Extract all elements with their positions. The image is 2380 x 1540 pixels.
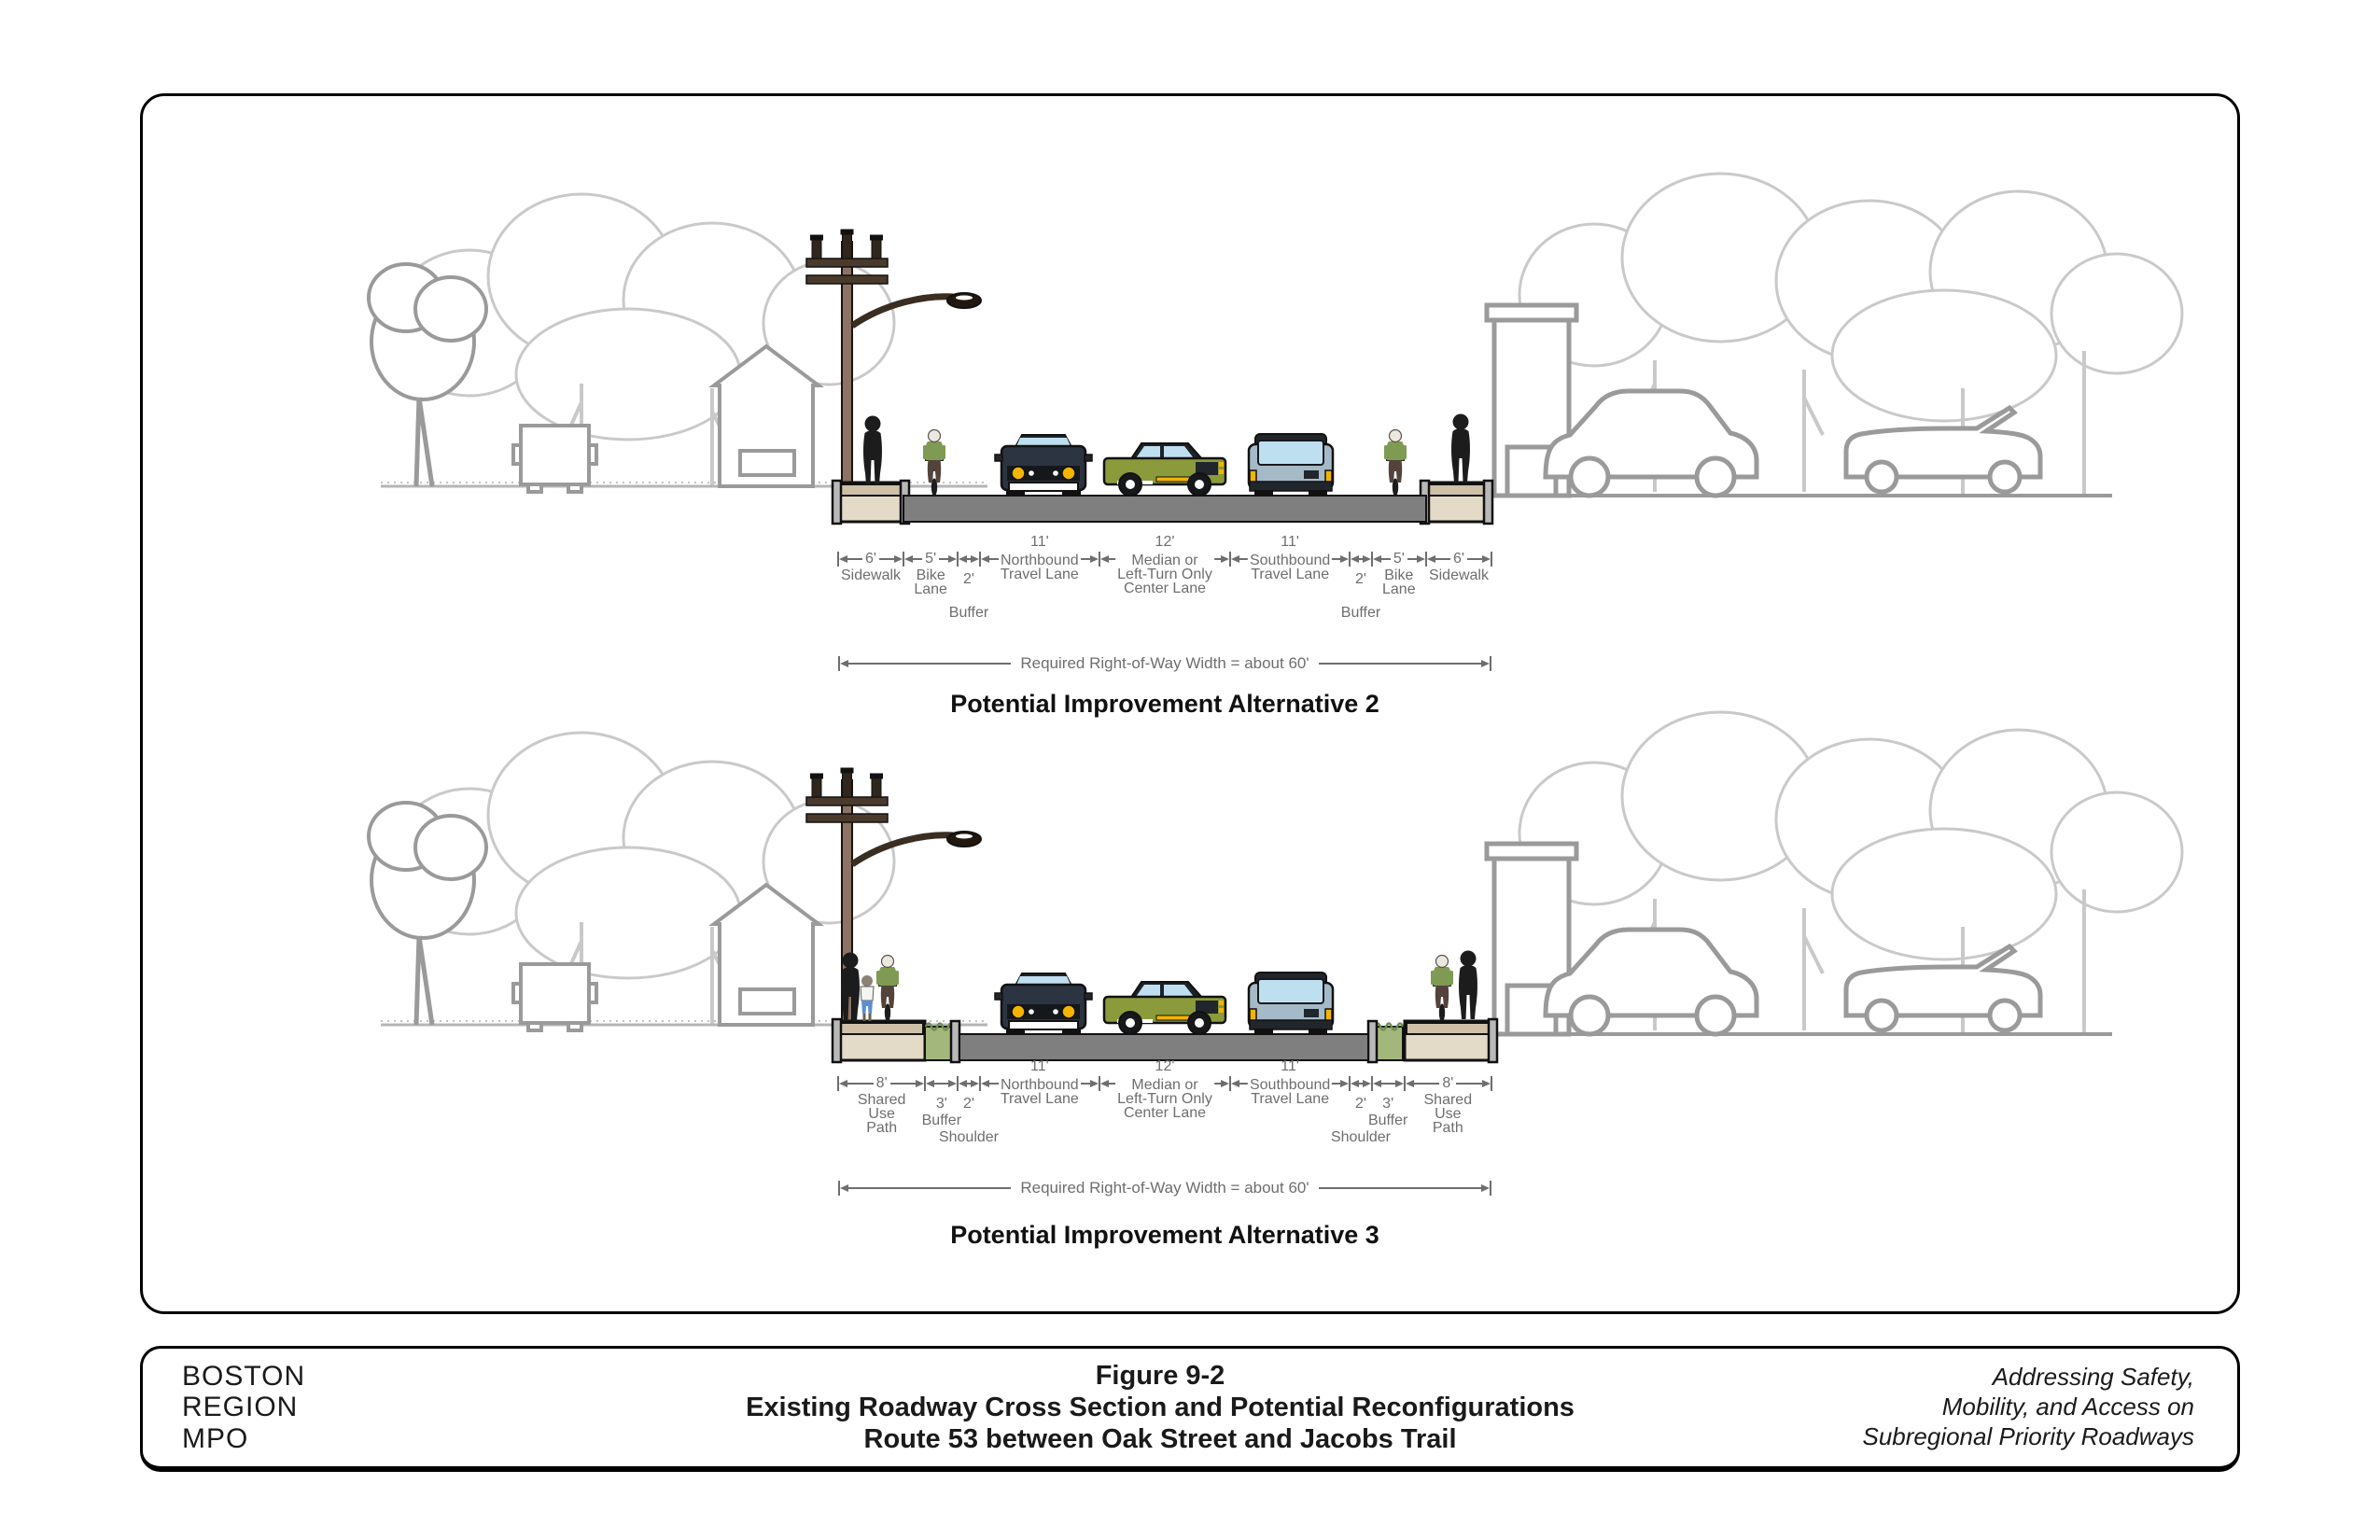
caption-alt3: Potential Improvement Alternative 3	[838, 1221, 1491, 1250]
cyclist-standing-right	[1431, 956, 1453, 1022]
dimension-segment: 11'Northbound Travel Lane	[980, 552, 1099, 656]
figure-number: Figure 9-2	[574, 1360, 1746, 1392]
report-tagline-line: Subregional Priority Roadways	[1746, 1422, 2194, 1452]
cross-section-alt2-illustration	[143, 104, 2237, 542]
agency-name-line: MPO	[182, 1423, 574, 1455]
cyclist-bike-lane-right	[1384, 430, 1407, 497]
pedestrian-silhouette	[1459, 951, 1477, 1020]
grass-buffer-left	[925, 1021, 959, 1062]
dimension-segment: 2'Shoulder	[1350, 1076, 1371, 1181]
dimension-segment: 6'Sidewalk	[838, 552, 903, 656]
cyclist-standing-left	[876, 956, 899, 1022]
report-tagline-line: Mobility, and Access on	[1746, 1393, 2194, 1422]
pedestrian-silhouette	[863, 416, 882, 485]
figure-frame: 6'Sidewalk 5'Bike Lane 2'Buffer 11'North…	[140, 93, 2240, 1314]
agency-name-line: BOSTON	[182, 1361, 574, 1393]
dimension-segment: 3'Buffer	[1372, 1076, 1405, 1181]
agency-name: BOSTON REGION MPO	[143, 1361, 574, 1455]
vehicles	[995, 434, 1333, 496]
right-of-way-dimension-alt2: Required Right-of-Way Width = about 60'	[838, 656, 1491, 671]
grass-buffer-right	[1368, 1021, 1403, 1062]
right-of-way-dimension-alt3: Required Right-of-Way Width = about 60'	[838, 1181, 1491, 1196]
roadway	[959, 1034, 1368, 1060]
dimension-segment: 3'Buffer	[925, 1076, 958, 1181]
dimension-strip-alt2: 6'Sidewalk 5'Bike Lane 2'Buffer 11'North…	[838, 552, 1491, 656]
roadway	[903, 496, 1426, 522]
dimension-strip-alt3: 8'Shared Use Path 3'Buffer 2'Shoulder 11…	[838, 1076, 1491, 1181]
dimension-segment: 8'Shared Use Path	[1405, 1076, 1491, 1181]
pedestrian-silhouette	[1451, 414, 1470, 483]
sidewalk-slab-right	[1421, 481, 1492, 524]
footer-title-block: BOSTON REGION MPO Figure 9-2 Existing Ro…	[140, 1346, 2240, 1472]
shared-use-path-left	[833, 1019, 925, 1062]
agency-name-line: REGION	[182, 1392, 574, 1423]
figure-title: Figure 9-2 Existing Roadway Cross Sectio…	[574, 1360, 1746, 1456]
shared-use-path-right	[1405, 1019, 1497, 1062]
dimension-segment: 8'Shared Use Path	[838, 1076, 925, 1181]
dimension-segment: 12'Median or Left-Turn Only Center Lane	[1099, 1076, 1230, 1181]
report-tagline-line: Addressing Safety,	[1746, 1363, 2194, 1393]
dimension-segment: 5'Bike Lane	[903, 552, 958, 656]
dimension-segment: 11'Southbound Travel Lane	[1230, 552, 1350, 656]
figure-subtitle-line: Route 53 between Oak Street and Jacobs T…	[574, 1423, 1746, 1455]
dimension-segment: 2'Shoulder	[958, 1076, 979, 1181]
sidewalk-slab-left	[833, 481, 909, 524]
cross-section-alt3-illustration	[143, 693, 2237, 1081]
dimension-segment: 2'Buffer	[958, 552, 979, 656]
vehicles	[995, 973, 1333, 1034]
dimension-segment: 6'Sidewalk	[1426, 552, 1491, 656]
dimension-segment: 11'Northbound Travel Lane	[980, 1076, 1099, 1181]
dimension-segment: 12'Median or Left-Turn Only Center Lane	[1099, 552, 1230, 656]
dimension-segment: 5'Bike Lane	[1372, 552, 1426, 656]
dimension-segment: 2'Buffer	[1350, 552, 1371, 656]
figure-title-line: Existing Roadway Cross Section and Poten…	[574, 1392, 1746, 1423]
row-width-label: Required Right-of-Way Width = about 60'	[1011, 1179, 1318, 1197]
dimension-segment: 11'Southbound Travel Lane	[1230, 1076, 1350, 1181]
row-width-label: Required Right-of-Way Width = about 60'	[1011, 654, 1318, 673]
report-tagline: Addressing Safety, Mobility, and Access …	[1746, 1363, 2237, 1451]
child-pedestrian	[861, 975, 874, 1021]
